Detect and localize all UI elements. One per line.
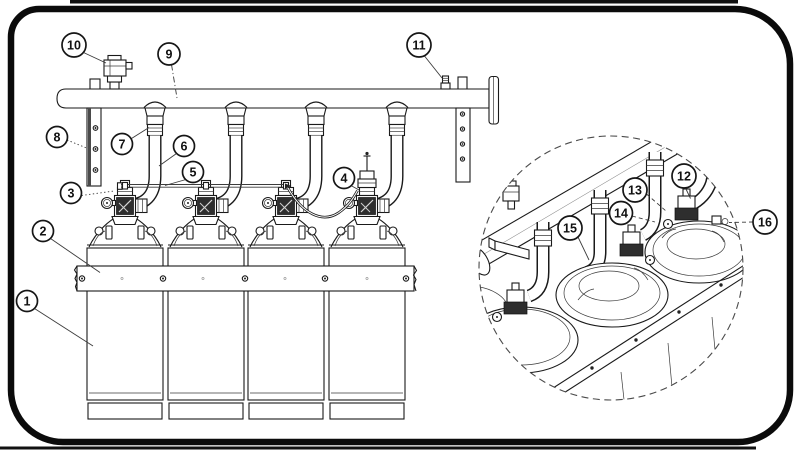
callout-6-label: 6 (181, 140, 188, 154)
callout-8: 8 (47, 127, 87, 149)
bracket-clamp-right (458, 77, 467, 90)
pressure-switch (104, 56, 132, 90)
callout-2-label: 2 (40, 225, 47, 239)
callout-4: 4 (334, 168, 360, 191)
callout-8-label: 8 (54, 131, 61, 145)
callout-13-label: 13 (628, 184, 642, 198)
callout-14-label: 14 (614, 207, 628, 221)
callout-5-label: 5 (190, 166, 197, 180)
manifold-end-flange (489, 77, 499, 125)
callout-11-label: 11 (412, 39, 425, 53)
manifold-plug (441, 76, 450, 89)
callout-3-label: 3 (68, 187, 75, 201)
callout-1: 1 (17, 291, 94, 347)
bracket-clamp-left (90, 79, 100, 90)
callout-10-label: 10 (67, 39, 81, 53)
page-edge-top (70, 0, 738, 4)
valve-actuator (358, 152, 376, 188)
callout-10: 10 (62, 33, 106, 63)
mounting-bracket-left (87, 108, 101, 186)
callout-9-label: 9 (166, 48, 173, 62)
diagram-canvas: 1 2 3 4 5 6 7 8 9 10 (0, 0, 804, 452)
callout-16-label: 16 (758, 216, 772, 230)
manifold-assembly (57, 56, 499, 187)
callout-15-label: 15 (563, 222, 577, 236)
parts-diagram-figure: 1 2 3 4 5 6 7 8 9 10 (0, 0, 804, 452)
callout-5: 5 (165, 162, 204, 186)
callout-4-label: 4 (341, 172, 348, 186)
callout-7-label: 7 (119, 138, 126, 152)
callout-11: 11 (407, 33, 442, 78)
manifold-pipe (57, 89, 489, 108)
callout-7: 7 (112, 128, 150, 155)
mounting-bracket-right (456, 108, 470, 182)
detail-view (428, 113, 755, 432)
callout-1-label: 1 (24, 295, 31, 309)
mounting-strap (75, 266, 417, 291)
callout-12-label: 12 (677, 170, 691, 184)
page-edge-bottom (0, 447, 756, 450)
